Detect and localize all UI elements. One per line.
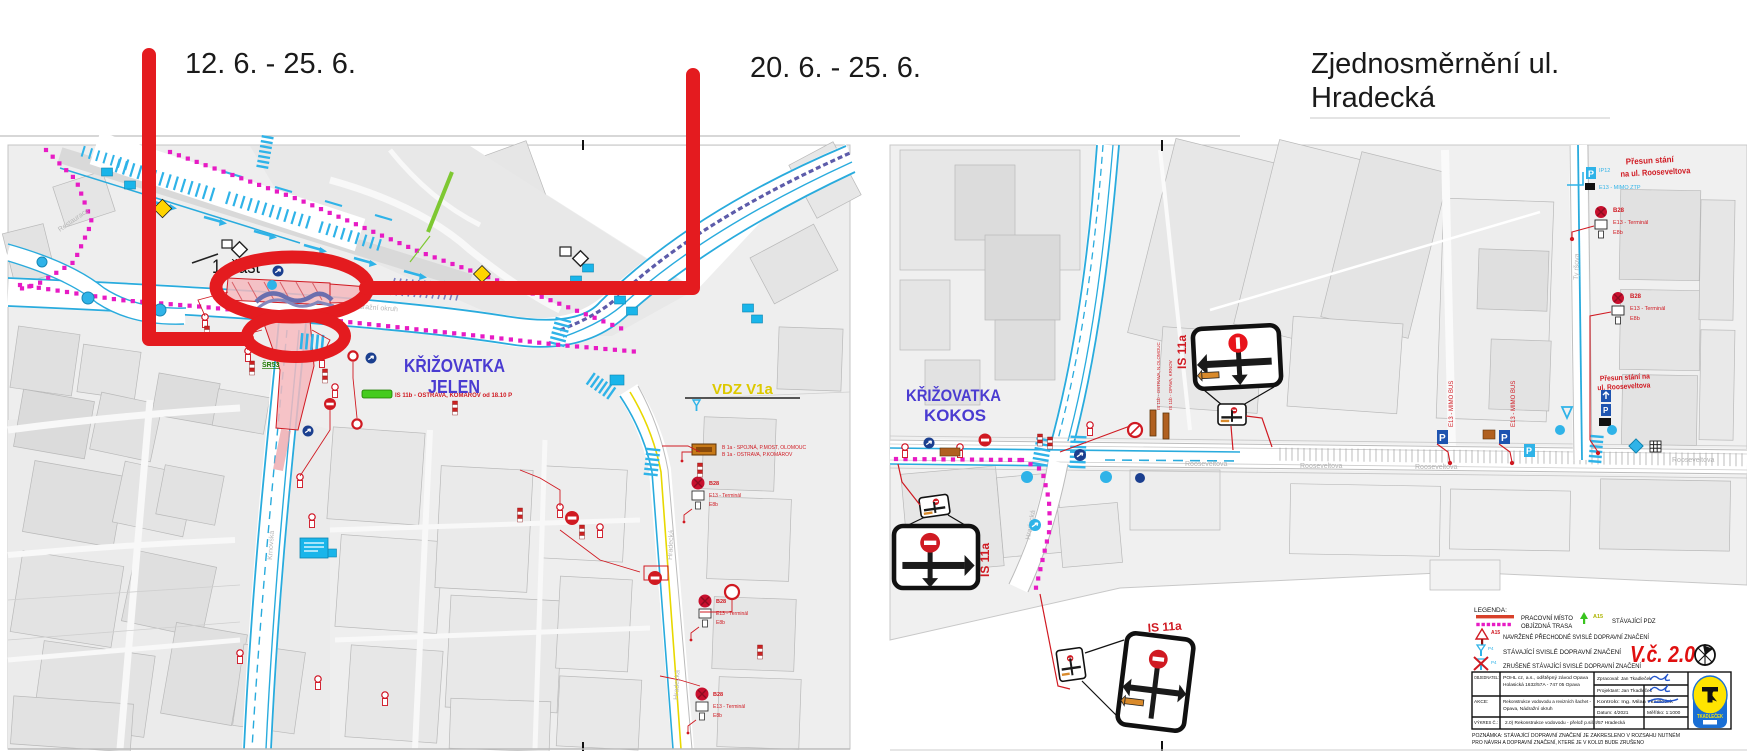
svg-text:Ty ršova: Ty ršova [1573, 253, 1581, 280]
svg-text:IP12: IP12 [1599, 168, 1610, 174]
svg-text:B 1a - SPOJNÁ, P.MOST, OLOMOUC: B 1a - SPOJNÁ, P.MOST, OLOMOUC [722, 444, 806, 451]
svg-text:JELEN: JELEN [428, 377, 480, 397]
svg-text:E13 - MIMO BUS: E13 - MIMO BUS [1449, 381, 1455, 427]
svg-text:IS 11a: IS 11a [978, 543, 992, 577]
svg-text:E13 - Terminál: E13 - Terminál [1613, 220, 1648, 226]
svg-text:Měřítko: 1:1000: Měřítko: 1:1000 [1647, 710, 1681, 716]
svg-text:E8b: E8b [1613, 230, 1623, 236]
svg-text:Holasická 1632/57A - 747 05 Op: Holasická 1632/57A - 747 05 Opava [1503, 682, 1580, 688]
svg-text:E8b: E8b [716, 620, 725, 626]
svg-text:2.0) Rekonstrukce vodovodu - p: 2.0) Rekonstrukce vodovodu - přelož p.si… [1505, 720, 1625, 726]
svg-text:P4: P4 [1491, 660, 1497, 665]
svg-text:E8b: E8b [713, 713, 722, 719]
svg-text:20. 6. - 25. 6.: 20. 6. - 25. 6. [750, 52, 921, 84]
svg-text:Rooseveltova: Rooseveltova [1672, 457, 1715, 464]
svg-text:STÁVAJÍCÍ PDZ: STÁVAJÍCÍ PDZ [1612, 618, 1656, 625]
svg-text:LEGENDA:: LEGENDA: [1474, 607, 1507, 614]
svg-text:POZNÁMKA: STÁVAJÍCÍ DOPRAVNÍ Z: POZNÁMKA: STÁVAJÍCÍ DOPRAVNÍ ZNAČENÍ JE … [1472, 732, 1680, 739]
svg-text:E13 - MIMO BUS: E13 - MIMO BUS [1511, 381, 1517, 427]
svg-text:TKADLEČEK: TKADLEČEK [1697, 713, 1723, 720]
svg-text:E13 - Terminál: E13 - Terminál [713, 704, 745, 710]
svg-text:E13 - Terminál: E13 - Terminál [1630, 306, 1665, 312]
svg-text:P: P [1526, 446, 1532, 456]
svg-text:B 1a - OSTRAVA, P.KOMÁROV: B 1a - OSTRAVA, P.KOMÁROV [722, 451, 793, 458]
svg-text:KOKOS: KOKOS [924, 406, 986, 425]
svg-text:E8b: E8b [1630, 316, 1640, 322]
svg-text:A15: A15 [1593, 614, 1603, 620]
svg-text:12. 6. - 25. 6.: 12. 6. - 25. 6. [185, 48, 356, 80]
svg-text:ZRUŠENÉ STÁVAJÍCÍ SVISLÉ DOPRA: ZRUŠENÉ STÁVAJÍCÍ SVISLÉ DOPRAVNÍ ZNAČEN… [1503, 663, 1641, 670]
svg-text:VDZ V1a: VDZ V1a [712, 381, 774, 398]
svg-text:KŘIŽOVATKA: KŘIŽOVATKA [906, 386, 1001, 405]
svg-text:Zpracoval: Jan Tkadleček: Zpracoval: Jan Tkadleček [1597, 676, 1652, 682]
svg-text:PRACOVNÍ MÍSTO: PRACOVNÍ MÍSTO [1521, 615, 1573, 622]
svg-text:V.č. 2.0: V.č. 2.0 [1630, 641, 1695, 667]
svg-text:IS 11a: IS 11a [1175, 335, 1189, 369]
svg-text:P4: P4 [1488, 646, 1494, 651]
svg-text:P: P [1439, 433, 1446, 444]
svg-text:P: P [1588, 169, 1594, 179]
svg-text:Datum: 4/2021: Datum: 4/2021 [1597, 710, 1629, 716]
svg-text:AKCE:: AKCE: [1474, 699, 1488, 705]
svg-text:NAVRŽENÉ PŘECHODNÉ SVISLÉ DOPR: NAVRŽENÉ PŘECHODNÉ SVISLÉ DOPRAVNÍ ZNAČE… [1503, 633, 1649, 641]
svg-text:PRO NÁVRH A DOPRAVNÍ ZNAČENÍ,: PRO NÁVRH A DOPRAVNÍ ZNAČENÍ, KTERÉ JE V… [1472, 739, 1645, 746]
svg-text:E13 - Terminál: E13 - Terminál [709, 493, 741, 499]
svg-text:IS 11b - OSTRAVA, N.OLOMOUC: IS 11b - OSTRAVA, N.OLOMOUC [1156, 341, 1161, 410]
svg-text:P: P [1501, 433, 1508, 444]
svg-text:Hradecká: Hradecká [1311, 82, 1436, 114]
svg-text:STÁVAJÍCÍ SVISLÉ DOPRAVNÍ ZNAČ: STÁVAJÍCÍ SVISLÉ DOPRAVNÍ ZNAČENÍ [1503, 649, 1621, 656]
svg-text:POHL cz, a.s., odštěpný závod: POHL cz, a.s., odštěpný závod Opava [1503, 675, 1588, 681]
svg-text:Opava, Nádražní okruh: Opava, Nádražní okruh [1503, 706, 1553, 712]
svg-text:B28: B28 [716, 599, 726, 605]
svg-text:Rekonstrukce vodovodu a revizn: Rekonstrukce vodovodu a revizních šachet… [1503, 699, 1591, 705]
svg-text:Rooseveltova: Rooseveltova [1185, 461, 1228, 468]
svg-text:A15: A15 [1491, 630, 1500, 636]
svg-text:Projektant: Jan Tkadleček: Projektant: Jan Tkadleček [1597, 688, 1653, 694]
svg-text:KŘIŽOVATKA: KŘIŽOVATKA [404, 355, 505, 376]
svg-text:Rooseveltova: Rooseveltova [1300, 463, 1343, 470]
svg-text:B28: B28 [1630, 294, 1642, 300]
svg-text:B28: B28 [709, 481, 719, 487]
svg-text:IS 11b - OPAVA, KRNOV: IS 11b - OPAVA, KRNOV [1168, 360, 1173, 410]
svg-text:Rooseveltova: Rooseveltova [1415, 464, 1458, 471]
svg-text:B28: B28 [1613, 208, 1625, 214]
svg-text:OBJEDNATEL:: OBJEDNATEL: [1474, 675, 1499, 681]
svg-text:OBJÍZDNÁ TRASA: OBJÍZDNÁ TRASA [1521, 623, 1572, 630]
svg-text:E8b: E8b [709, 502, 718, 508]
svg-text:IS 11a: IS 11a [1147, 619, 1182, 635]
svg-text:P: P [1603, 406, 1609, 415]
svg-text:Zjednosměrnění ul.: Zjednosměrnění ul. [1311, 48, 1559, 80]
svg-text:B28: B28 [713, 692, 723, 698]
svg-text:VÝKRES Č.:: VÝKRES Č.: [1474, 719, 1498, 726]
svg-text:E13 - MIMO ZTP: E13 - MIMO ZTP [1599, 185, 1641, 191]
